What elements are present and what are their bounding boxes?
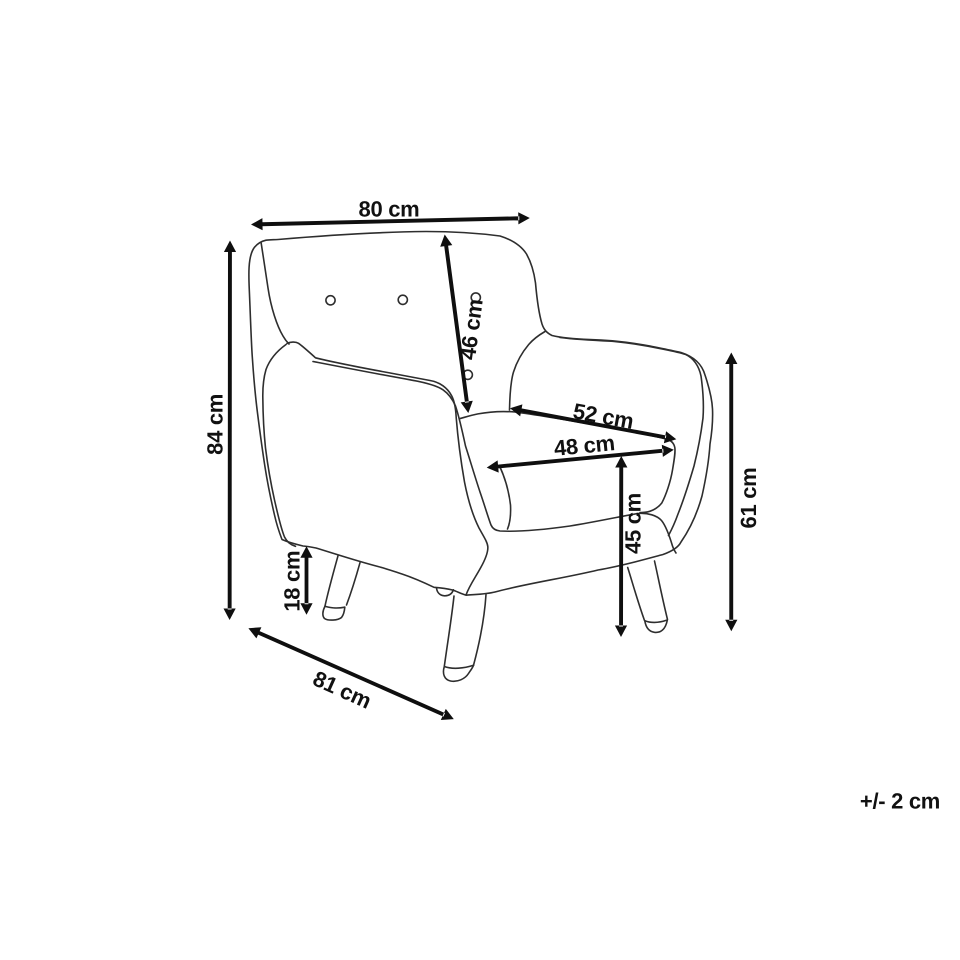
svg-text:+/- 2 cm: +/- 2 cm <box>860 789 940 814</box>
svg-text:18 cm: 18 cm <box>280 551 305 612</box>
svg-text:61 cm: 61 cm <box>736 468 761 529</box>
svg-text:80 cm: 80 cm <box>359 197 420 222</box>
svg-text:45 cm: 45 cm <box>621 493 646 554</box>
svg-text:84 cm: 84 cm <box>203 394 228 455</box>
